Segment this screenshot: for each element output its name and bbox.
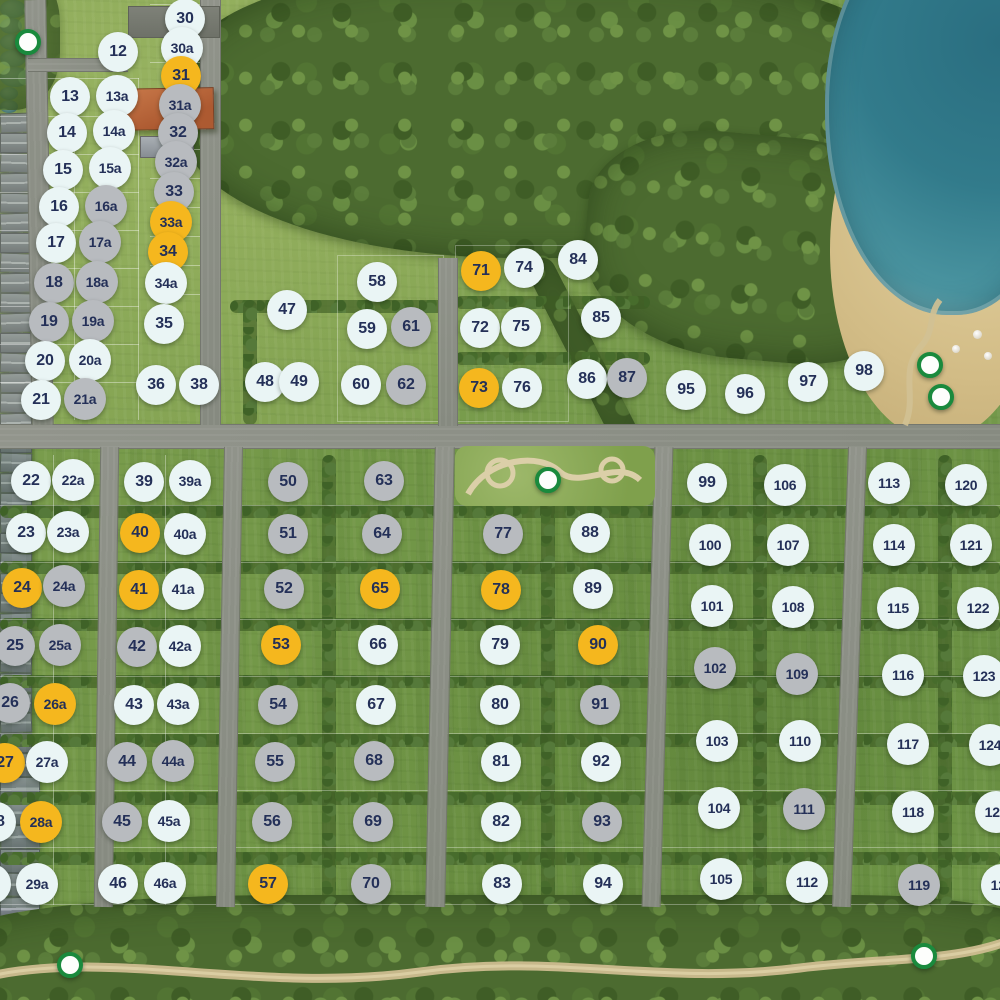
plot-marker-119[interactable]: 119 [898,864,940,906]
plot-marker-42[interactable]: 42 [117,627,157,667]
plot-number: 27 [0,754,14,772]
plot-number: 23a [57,524,80,540]
plot-number: 86 [578,370,595,388]
plot-marker-82[interactable]: 82 [481,802,521,842]
plot-number: 72 [471,319,488,337]
plot-marker-17a[interactable]: 17a [79,221,121,263]
plot-marker-93[interactable]: 93 [582,802,622,842]
plot-marker-123[interactable]: 123 [963,655,1000,697]
plot-number: 34 [159,243,176,261]
sales-office-marker[interactable] [15,29,41,55]
plot-number: 111 [793,801,814,817]
plot-number: 23 [17,524,34,542]
plot-marker-44a[interactable]: 44a [152,740,194,782]
plot-number: 105 [710,871,733,887]
plot-number: 46 [109,875,126,893]
plot-number: 65 [371,580,388,598]
plot-number: 120 [955,477,978,493]
plot-number: 15 [54,161,71,179]
plot-number: 15a [99,160,122,176]
plot-number: 68 [365,752,382,770]
plot-marker-66[interactable]: 66 [358,625,398,665]
plot-number: 53 [272,636,289,654]
plot-number: 45 [113,813,130,831]
plot-marker-29a[interactable]: 29a [16,863,58,905]
plot-marker-121[interactable]: 121 [950,524,992,566]
plot-marker-52[interactable]: 52 [264,569,304,609]
plot-marker-69[interactable]: 69 [353,802,393,842]
plot-marker-64[interactable]: 64 [362,514,402,554]
plot-marker-35[interactable]: 35 [144,304,184,344]
plot-marker-24a[interactable]: 24a [43,565,85,607]
plot-marker-105[interactable]: 105 [700,858,742,900]
plot-number: 12 [109,43,126,61]
plot-number: 30a [171,40,194,56]
plot-marker-51[interactable]: 51 [268,514,308,554]
plot-marker-54[interactable]: 54 [258,685,298,725]
plot-marker-106[interactable]: 106 [764,464,806,506]
plot-marker-16a[interactable]: 16a [85,185,127,227]
plot-number: 115 [887,600,909,616]
plot-marker-56[interactable]: 56 [252,802,292,842]
plot-number: 119 [908,877,930,893]
plot-number: 13 [61,88,78,106]
plot-number: 20a [79,352,102,368]
plot-number: 109 [786,666,809,682]
plot-marker-22a[interactable]: 22a [52,459,94,501]
plot-number: 51 [279,525,296,543]
plot-marker-98[interactable]: 98 [844,351,884,391]
plot-number: 91 [591,696,608,714]
plot-number: 33a [160,214,183,230]
plot-marker-47[interactable]: 47 [267,290,307,330]
plot-marker-23[interactable]: 23 [6,513,46,553]
plot-number: 110 [789,733,811,749]
plot-number: 92 [592,753,609,771]
plot-marker-12[interactable]: 12 [98,32,138,72]
plot-number: 32 [169,124,186,142]
plot-number: 87 [618,369,635,387]
plot-marker-42a[interactable]: 42a [159,625,201,667]
plot-number: 79 [491,636,508,654]
plot-number: 34a [155,275,178,291]
plot-number: 124 [979,737,1000,753]
plot-marker-92[interactable]: 92 [581,742,621,782]
plot-number: 28a [30,814,53,830]
plot-marker-95[interactable]: 95 [666,370,706,410]
plot-number: 52 [275,580,292,598]
plot-marker-36[interactable]: 36 [136,365,176,405]
plot-number: 88 [581,524,598,542]
plot-marker-89[interactable]: 89 [573,569,613,609]
plot-number: 82 [492,813,509,831]
hedgerow [243,300,257,425]
plot-marker-18a[interactable]: 18a [76,261,118,303]
plot-marker-46a[interactable]: 46a [144,862,186,904]
plot-marker-100[interactable]: 100 [689,524,731,566]
plot-marker-50[interactable]: 50 [268,462,308,502]
plot-marker-53[interactable]: 53 [261,625,301,665]
plot-number: 31 [172,67,189,85]
plot-number: 29a [26,876,49,892]
plot-number: 35 [155,315,172,333]
plot-marker-113[interactable]: 113 [868,462,910,504]
plot-number: 19a [82,313,105,329]
plot-number: 46a [154,875,177,891]
plot-number: 63 [375,472,392,490]
plot-marker-18[interactable]: 18 [34,263,74,303]
plot-number: 64 [373,525,390,543]
plot-marker-14a[interactable]: 14a [93,110,135,152]
plot-marker-23a[interactable]: 23a [47,511,89,553]
plot-marker-34a[interactable]: 34a [145,262,187,304]
plot-number: 96 [736,385,753,403]
plot-marker-87[interactable]: 87 [607,358,647,398]
beach-umbrella-icon [973,330,982,339]
plot-number: 102 [704,660,727,676]
plot-number: 38 [190,376,207,394]
hedgerow [938,455,952,905]
plot-marker-114[interactable]: 114 [873,524,915,566]
plot-marker-85[interactable]: 85 [581,298,621,338]
plot-marker-24[interactable]: 24 [2,568,42,608]
plot-number: 76 [513,379,530,397]
plot-number: 26 [1,694,18,712]
plot-marker-21a[interactable]: 21a [64,378,106,420]
plot-number: 17 [47,234,64,252]
plot-number: 85 [592,309,609,327]
plot-number: 104 [708,800,731,816]
plot-marker-19[interactable]: 19 [29,302,69,342]
plot-number: 103 [706,733,729,749]
plot-number: 31a [169,97,192,113]
plot-number: 71 [472,262,489,280]
plot-marker-45[interactable]: 45 [102,802,142,842]
plot-number: 106 [774,477,797,493]
plot-marker-112[interactable]: 112 [786,861,828,903]
plot-number: 125 [985,804,1000,820]
plot-marker-77[interactable]: 77 [483,514,523,554]
plot-marker-20a[interactable]: 20a [69,339,111,381]
plot-number: 89 [584,580,601,598]
plot-marker-16[interactable]: 16 [39,187,79,227]
plot-marker-49[interactable]: 49 [279,362,319,402]
plot-marker-111[interactable]: 111 [783,788,825,830]
plot-marker-78[interactable]: 78 [481,570,521,610]
plot-number: 18 [45,274,62,292]
plot-number: 112 [796,874,818,890]
trail-west-marker[interactable] [57,952,83,978]
plot-marker-17[interactable]: 17 [36,223,76,263]
plot-number: 75 [512,318,529,336]
plot-number: 54 [269,696,286,714]
plot-number: 24a [53,578,76,594]
plot-number: 55 [266,753,283,771]
plot-number: 43a [167,696,190,712]
plot-number: 42 [128,638,145,656]
plot-number: 40 [131,524,148,542]
plot-marker-67[interactable]: 67 [356,685,396,725]
plot-number: 21 [32,391,49,409]
plot-number: 80 [491,696,508,714]
plot-number: 26a [44,696,67,712]
plot-marker-40[interactable]: 40 [120,513,160,553]
plot-number: 16a [95,198,118,214]
hedgerow [455,296,650,309]
plot-marker-73[interactable]: 73 [459,368,499,408]
plot-marker-40a[interactable]: 40a [164,513,206,555]
plot-number: 108 [782,599,805,615]
plot-marker-39[interactable]: 39 [124,462,164,502]
plot-marker-44[interactable]: 44 [107,742,147,782]
plot-number: 81 [492,753,509,771]
plot-marker-13[interactable]: 13 [50,77,90,117]
beach-umbrella-icon [952,345,960,353]
plot-marker-55[interactable]: 55 [255,742,295,782]
plot-number: 14a [103,123,126,139]
plot-marker-20[interactable]: 20 [25,341,65,381]
plot-marker-104[interactable]: 104 [698,787,740,829]
plot-number: 16 [50,198,67,216]
plot-marker-57[interactable]: 57 [248,864,288,904]
plot-marker-72[interactable]: 72 [460,308,500,348]
plot-marker-15a[interactable]: 15a [89,147,131,189]
plot-marker-115[interactable]: 115 [877,587,919,629]
plot-number: 47 [278,301,295,319]
forest-south [0,895,1000,1000]
plot-marker-28a[interactable]: 28a [20,801,62,843]
plot-number: 42a [169,638,192,654]
plot-number: 117 [897,736,919,752]
plot-number: 94 [594,875,611,893]
plot-number: 77 [494,525,511,543]
plot-number: 57 [259,875,276,893]
plot-number: 17a [89,234,112,250]
plot-marker-97[interactable]: 97 [788,362,828,402]
plot-number: 74 [515,259,532,277]
plot-marker-70[interactable]: 70 [351,864,391,904]
plot-marker-80[interactable]: 80 [480,685,520,725]
plot-marker-116[interactable]: 116 [882,654,924,696]
plot-number: 62 [397,376,414,394]
plot-number: 21a [74,391,97,407]
plot-number: 90 [589,636,606,654]
plot-number: 19 [40,313,57,331]
plot-marker-83[interactable]: 83 [482,864,522,904]
plot-number: 48 [256,373,273,391]
plot-marker-19a[interactable]: 19a [72,300,114,342]
plot-marker-101[interactable]: 101 [691,585,733,627]
plot-marker-61[interactable]: 61 [391,307,431,347]
plot-number: 83 [493,875,510,893]
masterplan-map: 121313a1414a1515a1616a1717a1818a1919a202… [0,0,1000,1000]
plot-marker-15[interactable]: 15 [43,150,83,190]
plot-number: 18a [86,274,109,290]
plot-number: 98 [855,362,872,380]
plot-marker-81[interactable]: 81 [481,742,521,782]
plot-number: 45a [158,813,181,829]
hedgerow [753,455,767,905]
plot-number: 32a [165,154,188,170]
plot-number: 122 [967,600,990,616]
plot-number: 40a [174,526,197,542]
plot-number: 61 [402,318,419,336]
plot-number: 14 [58,124,75,142]
plot-marker-38[interactable]: 38 [179,365,219,405]
plot-marker-41[interactable]: 41 [119,570,159,610]
plot-marker-22[interactable]: 22 [11,461,51,501]
plot-number: 36 [147,376,164,394]
plot-marker-76[interactable]: 76 [502,368,542,408]
plot-marker-26a[interactable]: 26a [34,683,76,725]
plot-marker-62[interactable]: 62 [386,365,426,405]
plot-number: 66 [369,636,386,654]
plot-marker-79[interactable]: 79 [480,625,520,665]
plot-number: 43 [125,696,142,714]
plot-marker-103[interactable]: 103 [696,720,738,762]
plot-number: 49 [290,373,307,391]
plot-marker-21[interactable]: 21 [21,380,61,420]
plot-number: 70 [362,875,379,893]
plot-number: 123 [973,668,996,684]
plot-marker-65[interactable]: 65 [360,569,400,609]
plot-number: 39 [135,473,152,491]
plot-number: 97 [799,373,816,391]
plot-marker-108[interactable]: 108 [772,586,814,628]
plot-marker-27a[interactable]: 27a [26,741,68,783]
plot-number: 100 [699,537,722,553]
beach-umbrella-icon [984,352,992,360]
plot-number: 41a [172,581,195,597]
plot-number: 44a [162,753,185,769]
plot-number: 99 [698,474,715,492]
plot-number: 24 [13,579,30,597]
plot-marker-118[interactable]: 118 [892,791,934,833]
road-north [200,0,221,425]
plot-number: 84 [569,251,586,269]
plot-marker-43a[interactable]: 43a [157,683,199,725]
plot-marker-90[interactable]: 90 [578,625,618,665]
plot-number: 107 [777,537,800,553]
plot-marker-94[interactable]: 94 [583,864,623,904]
plot-number: 33 [165,183,182,201]
plot-number: 25a [49,637,72,653]
plot-marker-117[interactable]: 117 [887,723,929,765]
plot-marker-43[interactable]: 43 [114,685,154,725]
hedgerow [322,455,336,905]
beach-marker[interactable] [917,352,943,378]
plot-number: 59 [358,320,375,338]
plot-marker-102[interactable]: 102 [694,647,736,689]
plot-number: 101 [701,598,724,614]
plot-marker-88[interactable]: 88 [570,513,610,553]
trail-east-marker[interactable] [911,943,937,969]
plot-number: 27a [36,754,59,770]
plot-number: 67 [367,696,384,714]
plot-number: 22a [62,472,85,488]
plot-marker-99[interactable]: 99 [687,463,727,503]
plot-marker-25a[interactable]: 25a [39,624,81,666]
plot-marker-41a[interactable]: 41a [162,568,204,610]
plot-marker-75[interactable]: 75 [501,307,541,347]
plot-number: 121 [960,537,983,553]
plot-number: 78 [492,581,509,599]
plot-number: 113 [878,475,900,491]
plot-marker-14[interactable]: 14 [47,113,87,153]
plot-marker-59[interactable]: 59 [347,309,387,349]
plot-marker-45a[interactable]: 45a [148,800,190,842]
plot-number: 41 [130,581,147,599]
beach-south-marker[interactable] [928,384,954,410]
plot-number: 114 [883,537,905,553]
plot-marker-120[interactable]: 120 [945,464,987,506]
plot-number: 60 [352,376,369,394]
plot-number: 13a [106,88,129,104]
plot-number: 116 [892,667,914,683]
plot-marker-74[interactable]: 74 [504,248,544,288]
park-marker[interactable] [535,467,561,493]
plot-number: 20 [36,352,53,370]
plot-number: 25 [6,637,23,655]
plot-marker-96[interactable]: 96 [725,374,765,414]
plot-marker-39a[interactable]: 39a [169,460,211,502]
plot-number: 44 [118,753,135,771]
plot-number: 69 [364,813,381,831]
plot-marker-71[interactable]: 71 [461,251,501,291]
plot-number: 22 [22,472,39,490]
plot-marker-110[interactable]: 110 [779,720,821,762]
plot-number: 126 [991,877,1000,893]
plot-number: 118 [902,804,924,820]
plot-marker-58[interactable]: 58 [357,262,397,302]
plot-number: 28 [0,813,5,831]
plot-marker-122[interactable]: 122 [957,587,999,629]
plot-number: 95 [677,381,694,399]
plot-number: 39a [179,473,202,489]
hedgerow [541,455,555,905]
plot-marker-107[interactable]: 107 [767,524,809,566]
plot-marker-46[interactable]: 46 [98,864,138,904]
plot-marker-109[interactable]: 109 [776,653,818,695]
plot-number: 73 [470,379,487,397]
plot-number: 93 [593,813,610,831]
plot-number: 58 [368,273,385,291]
plot-number: 56 [263,813,280,831]
plot-marker-68[interactable]: 68 [354,741,394,781]
plot-marker-63[interactable]: 63 [364,461,404,501]
plot-marker-84[interactable]: 84 [558,240,598,280]
plot-marker-86[interactable]: 86 [567,359,607,399]
plot-number: 30 [176,10,193,28]
plot-number: 50 [279,473,296,491]
road-center-north [438,258,458,426]
plot-marker-60[interactable]: 60 [341,365,381,405]
plot-marker-91[interactable]: 91 [580,685,620,725]
